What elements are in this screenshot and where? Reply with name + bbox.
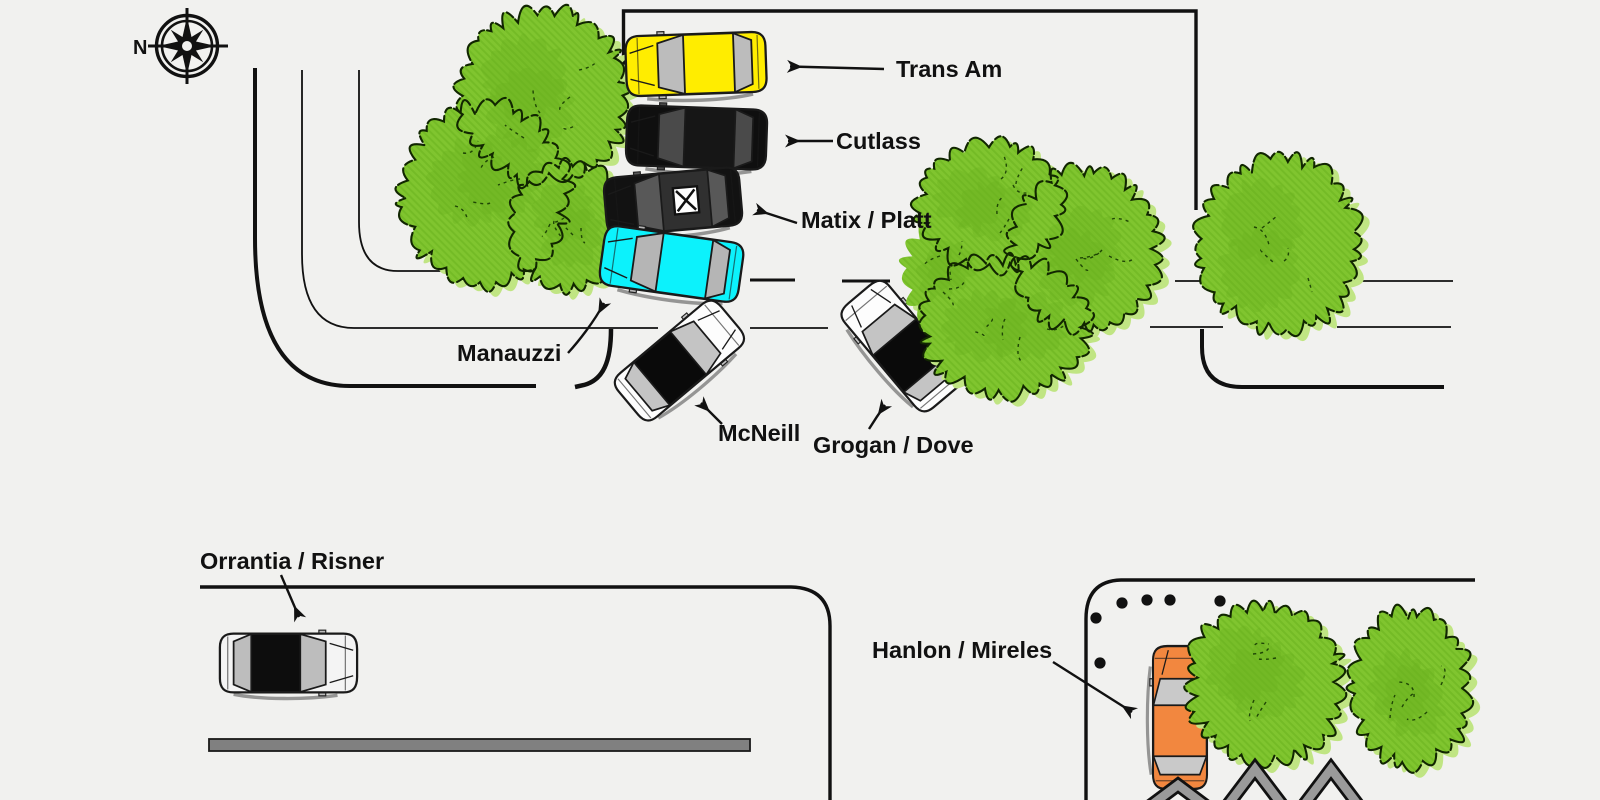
svg-text:Hanlon / Mireles: Hanlon / Mireles (872, 637, 1052, 663)
svg-text:Cutlass: Cutlass (836, 128, 921, 154)
svg-text:Manauzzi: Manauzzi (457, 340, 561, 366)
svg-text:Trans Am: Trans Am (896, 56, 1002, 82)
svg-text:Orrantia / Risner: Orrantia / Risner (200, 548, 384, 574)
svg-text:N: N (133, 37, 147, 59)
svg-text:Matix / Platt: Matix / Platt (801, 207, 932, 233)
svg-text:Grogan / Dove: Grogan / Dove (813, 432, 974, 458)
svg-text:McNeill: McNeill (718, 420, 800, 446)
